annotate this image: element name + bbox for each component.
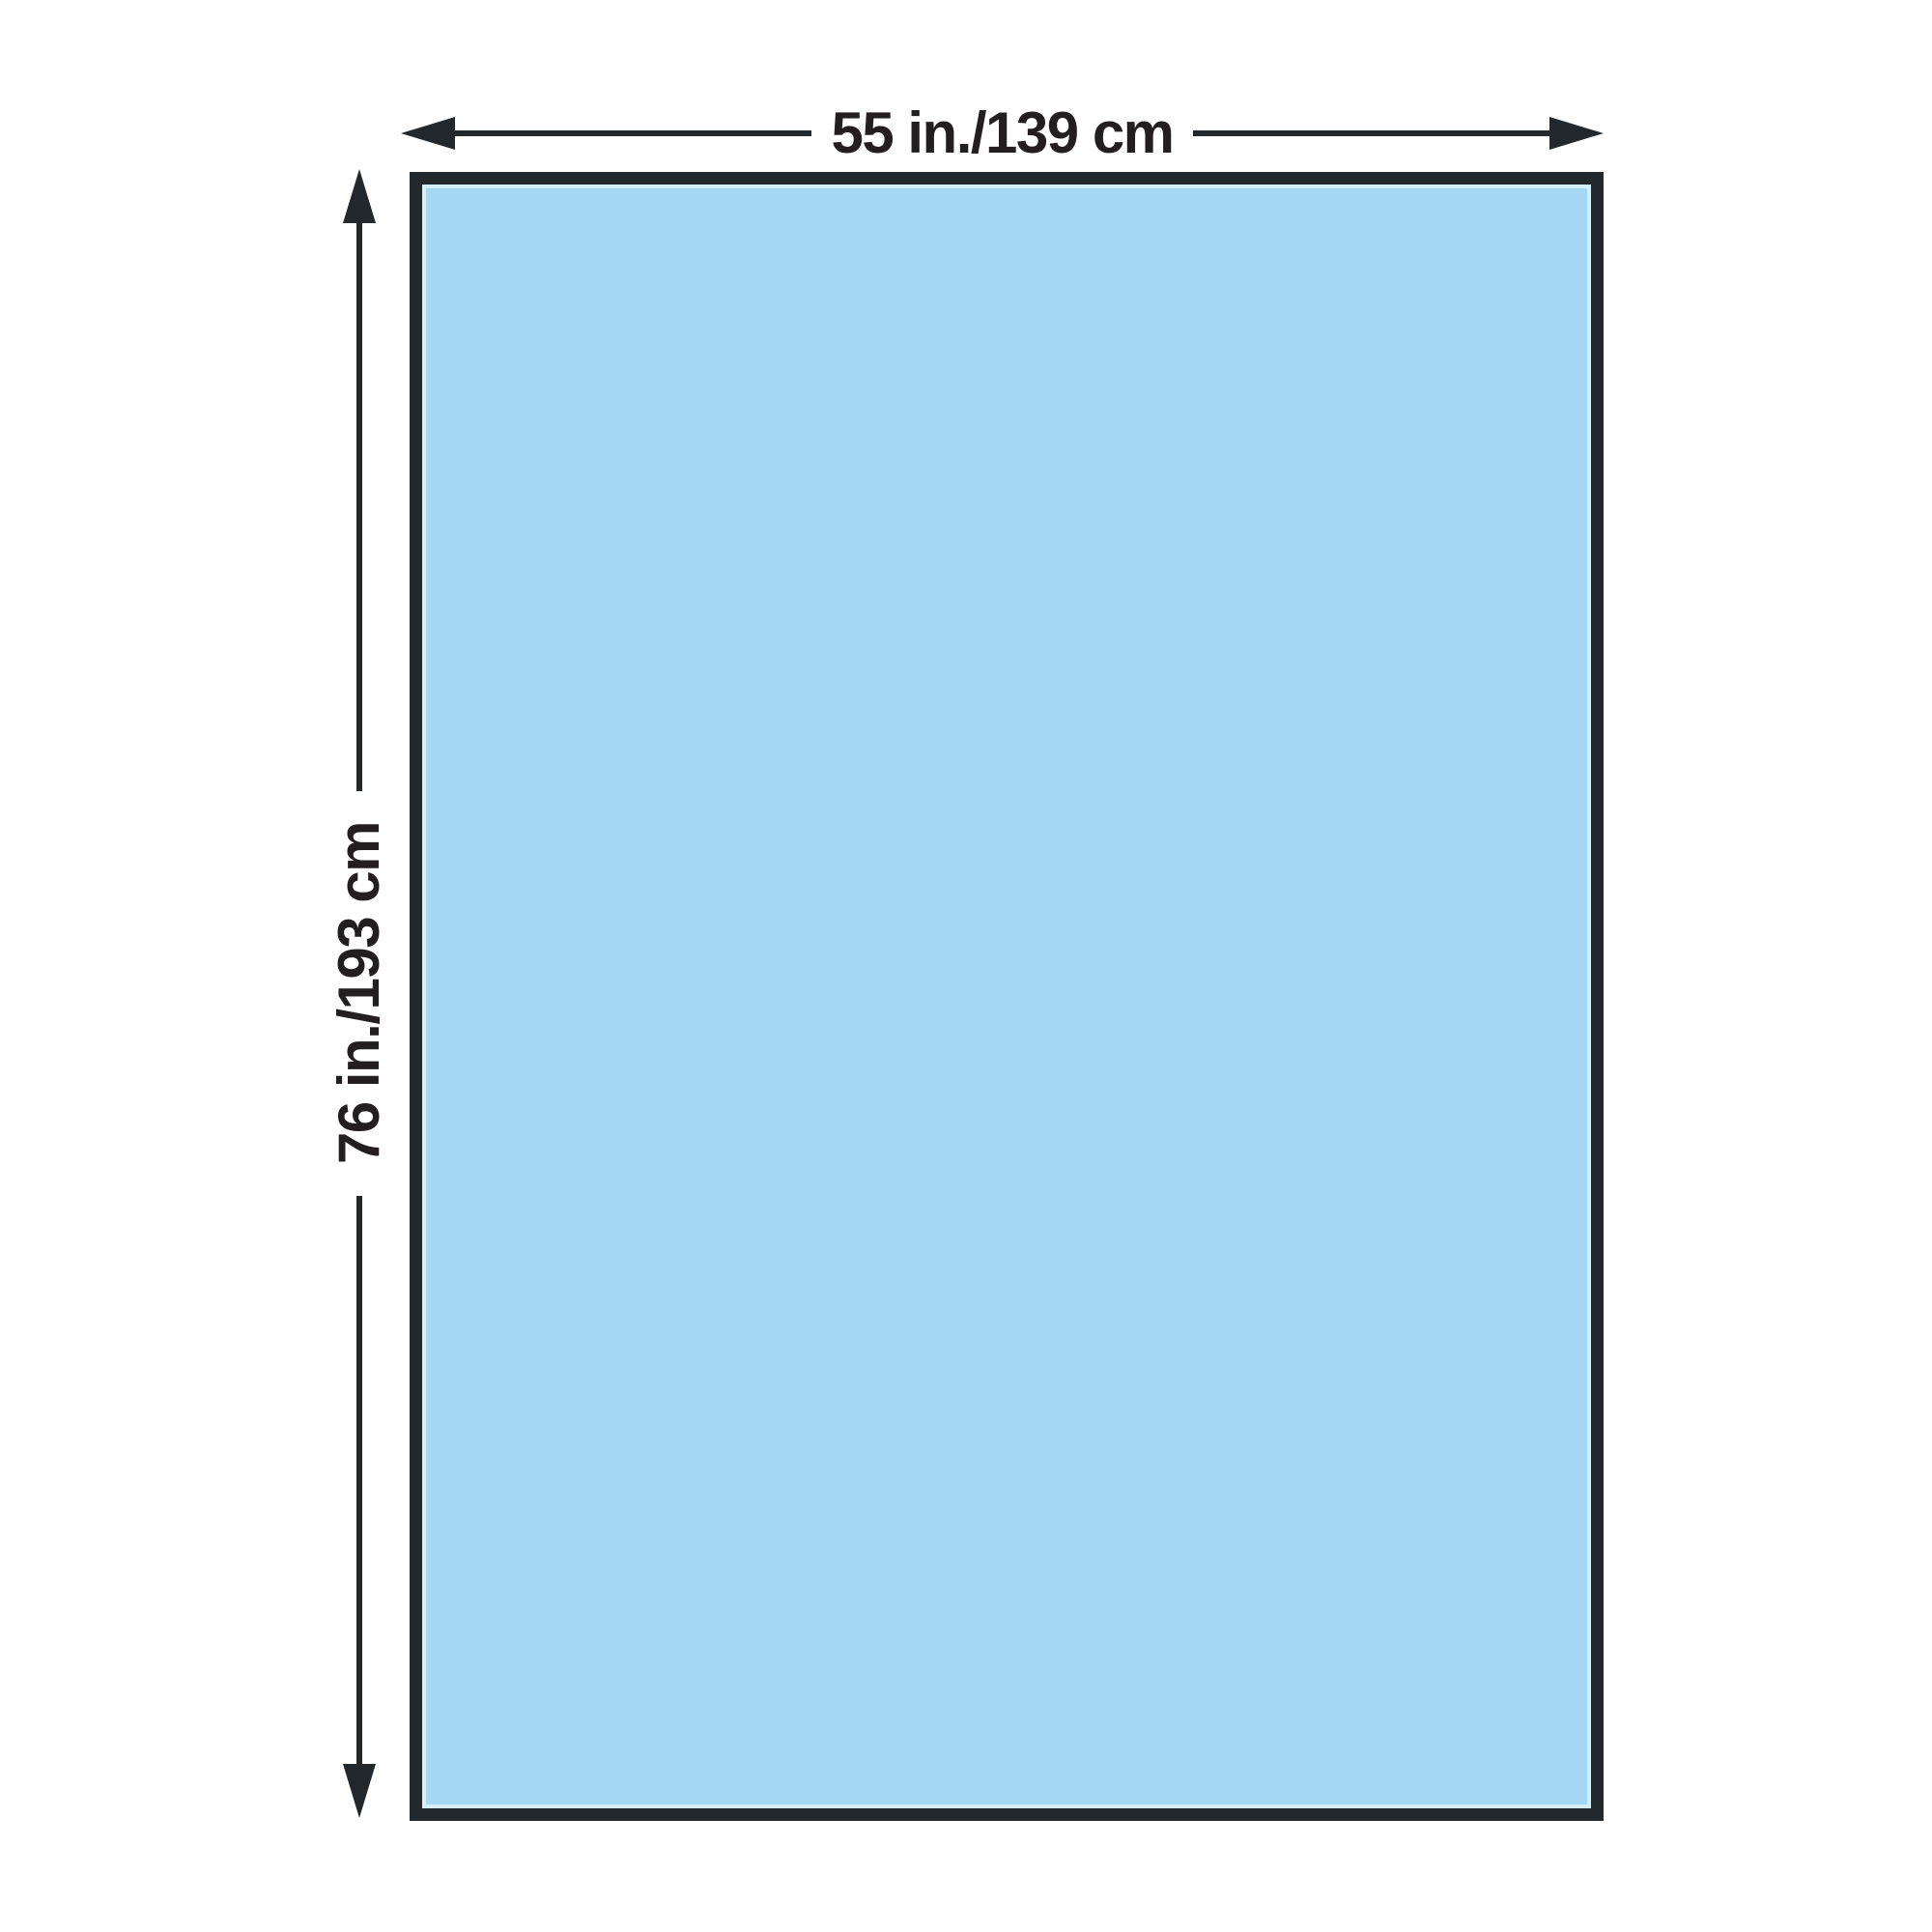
height-dimension: 76 in./193 cm <box>320 169 399 1818</box>
height-dimension-label: 76 in./193 cm <box>330 822 388 1164</box>
drape-rectangle <box>410 172 1604 1821</box>
width-dimension-line-right <box>1193 130 1549 136</box>
arrow-down-icon <box>343 1764 376 1818</box>
width-dimension-line-left <box>455 130 811 136</box>
width-dimension: 55 in./139 cm <box>401 94 1604 173</box>
height-dimension-line-top <box>356 223 362 791</box>
width-dimension-label: 55 in./139 cm <box>831 104 1173 162</box>
arrow-up-icon <box>343 169 376 223</box>
height-dimension-line-bottom <box>356 1196 362 1764</box>
arrow-right-icon <box>1549 117 1604 150</box>
dimension-diagram: 55 in./139 cm 76 in./193 cm <box>0 0 1932 1932</box>
arrow-left-icon <box>401 117 455 150</box>
